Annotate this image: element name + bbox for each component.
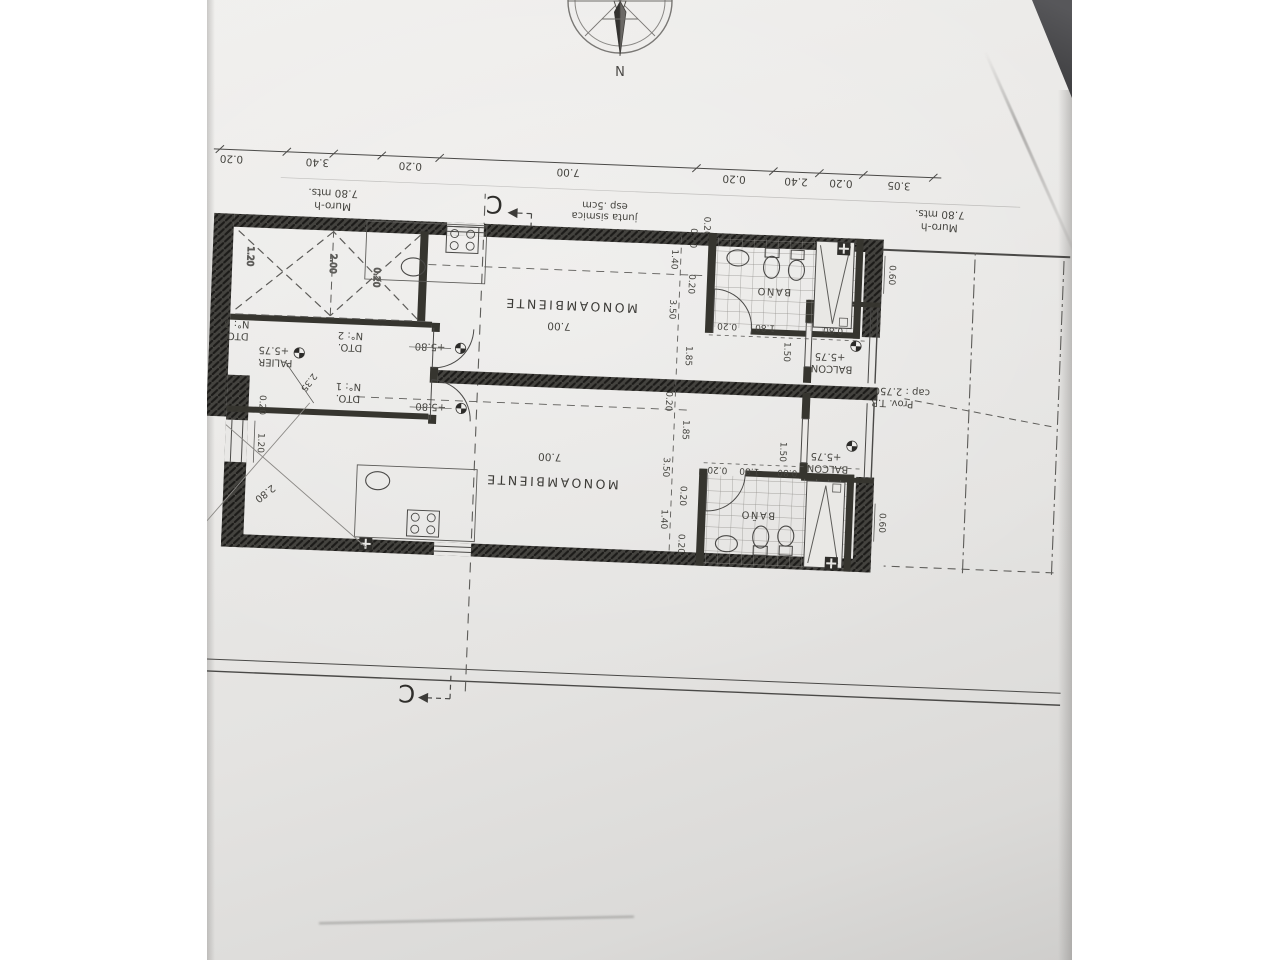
svg-text:7.80 mts.: 7.80 mts. xyxy=(915,207,965,221)
svg-text:DTO.: DTO. xyxy=(338,341,363,353)
paper-crease-bottom xyxy=(319,916,634,925)
svg-text:0.20: 0.20 xyxy=(663,391,674,412)
stair-dim: 2.00 xyxy=(327,253,338,274)
palier-label: PALIER xyxy=(258,356,292,368)
svg-text:junta sismica: junta sismica xyxy=(571,209,638,223)
edge-dim-b: 0.60 xyxy=(886,265,897,286)
svg-text:0.20: 0.20 xyxy=(685,274,696,295)
svg-text:Muro-h: Muro-h xyxy=(921,220,958,233)
svg-text:7.80 mts.: 7.80 mts. xyxy=(308,186,358,200)
svg-text:0.20: 0.20 xyxy=(675,534,686,555)
wall-height-note-left: Muro-h 7.80 mts. xyxy=(914,207,965,234)
svg-text:N°: 3: N°: 3 xyxy=(224,317,250,329)
svg-text:3.50: 3.50 xyxy=(666,299,677,320)
section-letter: C xyxy=(486,190,504,219)
stair-dim: 1.20 xyxy=(244,246,255,267)
svg-text:0.80: 0.80 xyxy=(777,467,798,478)
interior-dim-column: 0.20 1.40 0.20 3.50 1.85 0.20 1.85 3.50 … xyxy=(657,227,698,562)
floor-plan-drawing: C C xyxy=(207,111,1072,745)
svg-text:1.85: 1.85 xyxy=(683,346,694,366)
room-level: +5.80 xyxy=(415,340,446,352)
apartment-label-1: DTO. N°: 1 xyxy=(335,380,361,404)
svg-text:0.20: 0.20 xyxy=(677,486,688,507)
photo-background-corner xyxy=(1032,0,1072,98)
svg-text:1.20: 1.20 xyxy=(255,433,266,454)
section-marker-bottom: C xyxy=(398,673,451,709)
svg-text:DTO.: DTO. xyxy=(224,329,249,341)
balcony-level: +5.75 xyxy=(815,350,846,362)
top-dim: 0.20 xyxy=(829,177,853,190)
top-dim: 7.00 xyxy=(556,166,580,179)
property-lines xyxy=(207,658,1061,705)
svg-text:3.50: 3.50 xyxy=(660,457,671,478)
balcony-door-dim: 1.50 xyxy=(781,342,792,363)
bathroom-unit-a: BAÑO xyxy=(704,473,848,570)
bathroom-unit-b: BAÑO xyxy=(713,237,857,339)
balcony-label: BALCON xyxy=(811,362,853,375)
level-symbol xyxy=(294,348,305,359)
level-symbol xyxy=(456,403,467,414)
svg-text:0.20: 0.20 xyxy=(256,395,267,416)
svg-text:Muro-h: Muro-h xyxy=(314,199,351,212)
apartment-label-3: DTO. N°: 3 xyxy=(223,317,249,341)
svg-text:1.80: 1.80 xyxy=(739,465,760,476)
room-dim: 7.00 xyxy=(547,319,571,332)
room-label: MONOAMBIENTE xyxy=(504,296,638,316)
compass-svg: N xyxy=(552,0,688,88)
edge-dim-a: 0.60 xyxy=(876,513,887,534)
level-symbol xyxy=(455,343,466,354)
top-dim: 0.20 xyxy=(398,159,422,172)
svg-text:1.40: 1.40 xyxy=(658,509,669,530)
palier-level: +5.75 xyxy=(258,344,289,356)
level-symbol xyxy=(847,441,858,452)
top-dim: 3.40 xyxy=(305,156,329,169)
level-symbol xyxy=(851,341,862,352)
stair-void: 2.00 1.20 0.20 xyxy=(230,226,428,322)
top-dim: 0.20 xyxy=(722,172,746,185)
terrace-area: 0.60 0.60 xyxy=(871,248,1071,577)
svg-text:0.20: 0.20 xyxy=(707,464,728,475)
svg-text:N°: 1: N°: 1 xyxy=(336,380,362,392)
screenshot: C C xyxy=(0,0,1280,960)
apartment-label-2: DTO. N°: 2 xyxy=(337,329,363,353)
balcony-door-dim: 1.50 xyxy=(777,442,788,463)
svg-text:N°: 2: N°: 2 xyxy=(338,329,364,341)
room-dim: 7.00 xyxy=(538,450,562,463)
room-label: MONOAMBIENTE xyxy=(485,472,619,492)
balcony-level: +5.75 xyxy=(810,450,841,462)
section-line xyxy=(465,194,485,692)
wall-height-note-right: Muro-h 7.80 mts. xyxy=(308,186,359,213)
room-unit-b: MONOAMBIENTE 7.00 +5.80 xyxy=(361,221,704,378)
compass-rose: N xyxy=(552,0,688,88)
room-unit-a: MONOAMBIENTE 7.00 +5.80 xyxy=(351,377,687,550)
palier-dim: 2.35 xyxy=(298,371,318,393)
stair-dim: 0.20 xyxy=(370,267,381,288)
svg-text:1.40: 1.40 xyxy=(668,249,679,270)
compass-north-label: N xyxy=(615,65,625,80)
photo-paper: C C xyxy=(207,0,1072,960)
side-wall-dims: 0.20 1.20 xyxy=(253,395,267,463)
svg-text:1.85: 1.85 xyxy=(680,420,691,440)
svg-text:esp .5cm: esp .5cm xyxy=(582,199,628,212)
top-dim: 0.20 xyxy=(220,152,244,165)
section-marker-top: C xyxy=(485,190,532,228)
svg-text:DTO.: DTO. xyxy=(336,392,361,404)
top-dim: 3.05 xyxy=(887,179,911,192)
svg-text:0.20: 0.20 xyxy=(687,228,698,249)
floor-plan-svg: C C xyxy=(207,111,1072,745)
top-dim: 2.40 xyxy=(784,175,808,188)
section-letter: C xyxy=(398,679,416,708)
diag-dim: 2.80 xyxy=(253,482,277,504)
